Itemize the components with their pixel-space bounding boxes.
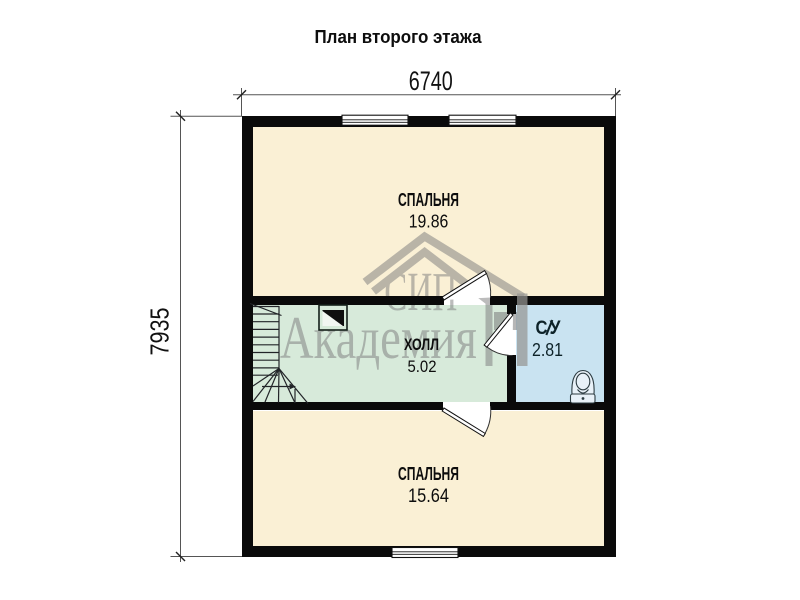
svg-text:6740: 6740	[409, 66, 453, 96]
svg-text:2.81: 2.81	[532, 339, 563, 360]
svg-text:План второго этажа: План второго этажа	[315, 27, 483, 47]
svg-text:СПАЛЬНЯ: СПАЛЬНЯ	[398, 189, 459, 210]
svg-text:7935: 7935	[145, 308, 175, 356]
svg-text:У: У	[550, 318, 561, 339]
svg-text:СПАЛЬНЯ: СПАЛЬНЯ	[398, 463, 459, 484]
svg-text:5.02: 5.02	[408, 357, 437, 376]
svg-text:15.64: 15.64	[408, 486, 449, 507]
svg-text:Академия: Академия	[280, 305, 477, 371]
svg-text:19.86: 19.86	[409, 212, 449, 232]
svg-text:ХОЛЛ: ХОЛЛ	[404, 336, 439, 354]
svg-text:С: С	[536, 318, 548, 339]
